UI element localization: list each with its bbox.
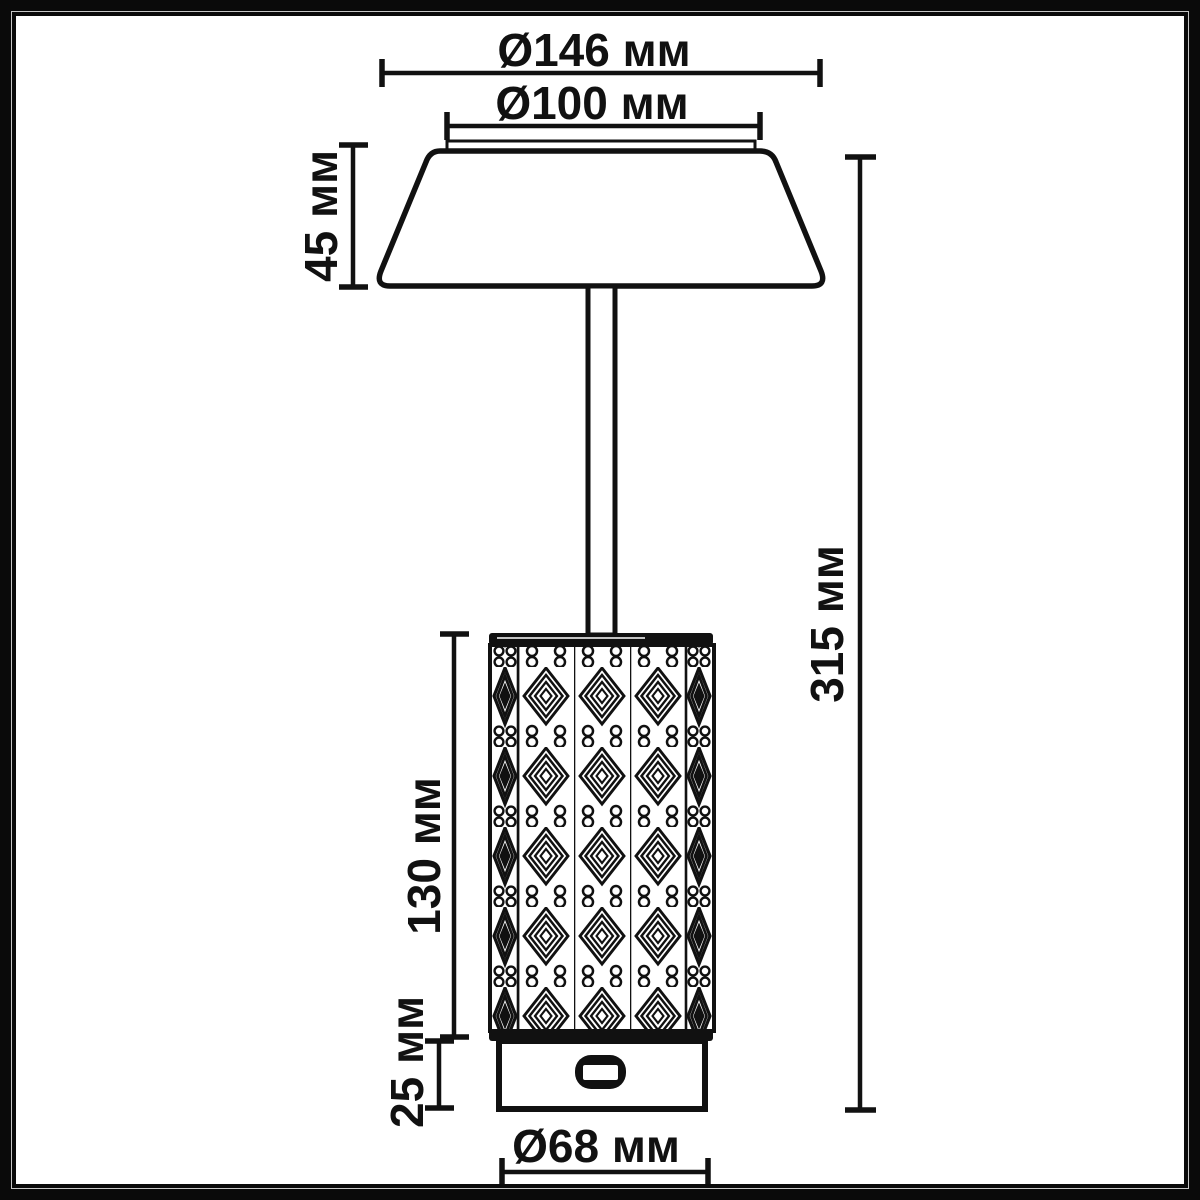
label-shade-height: 45 мм	[298, 150, 344, 282]
lamp-shade	[379, 151, 822, 286]
label-shade-outer-diameter: Ø146 мм	[497, 27, 690, 73]
lamp-technical-drawing	[0, 0, 1200, 1200]
label-base-diameter: Ø68 мм	[512, 1123, 680, 1169]
lamp-body-crystal-pattern	[518, 645, 686, 1031]
label-total-height: 315 мм	[804, 545, 850, 703]
lamp-body-crystal-edge-right	[686, 645, 712, 1031]
lamp-stem	[588, 286, 615, 635]
power-button	[575, 1055, 626, 1089]
label-base-height: 25 мм	[384, 996, 430, 1128]
lamp-body-crystal-edge-left	[492, 645, 518, 1031]
diagram-canvas: Ø146 мм Ø100 мм 45 мм 315 мм 130 мм 25 м…	[0, 0, 1200, 1200]
label-shade-inner-diameter: Ø100 мм	[495, 80, 688, 126]
lamp-body	[490, 645, 714, 1031]
label-body-height: 130 мм	[401, 777, 447, 935]
